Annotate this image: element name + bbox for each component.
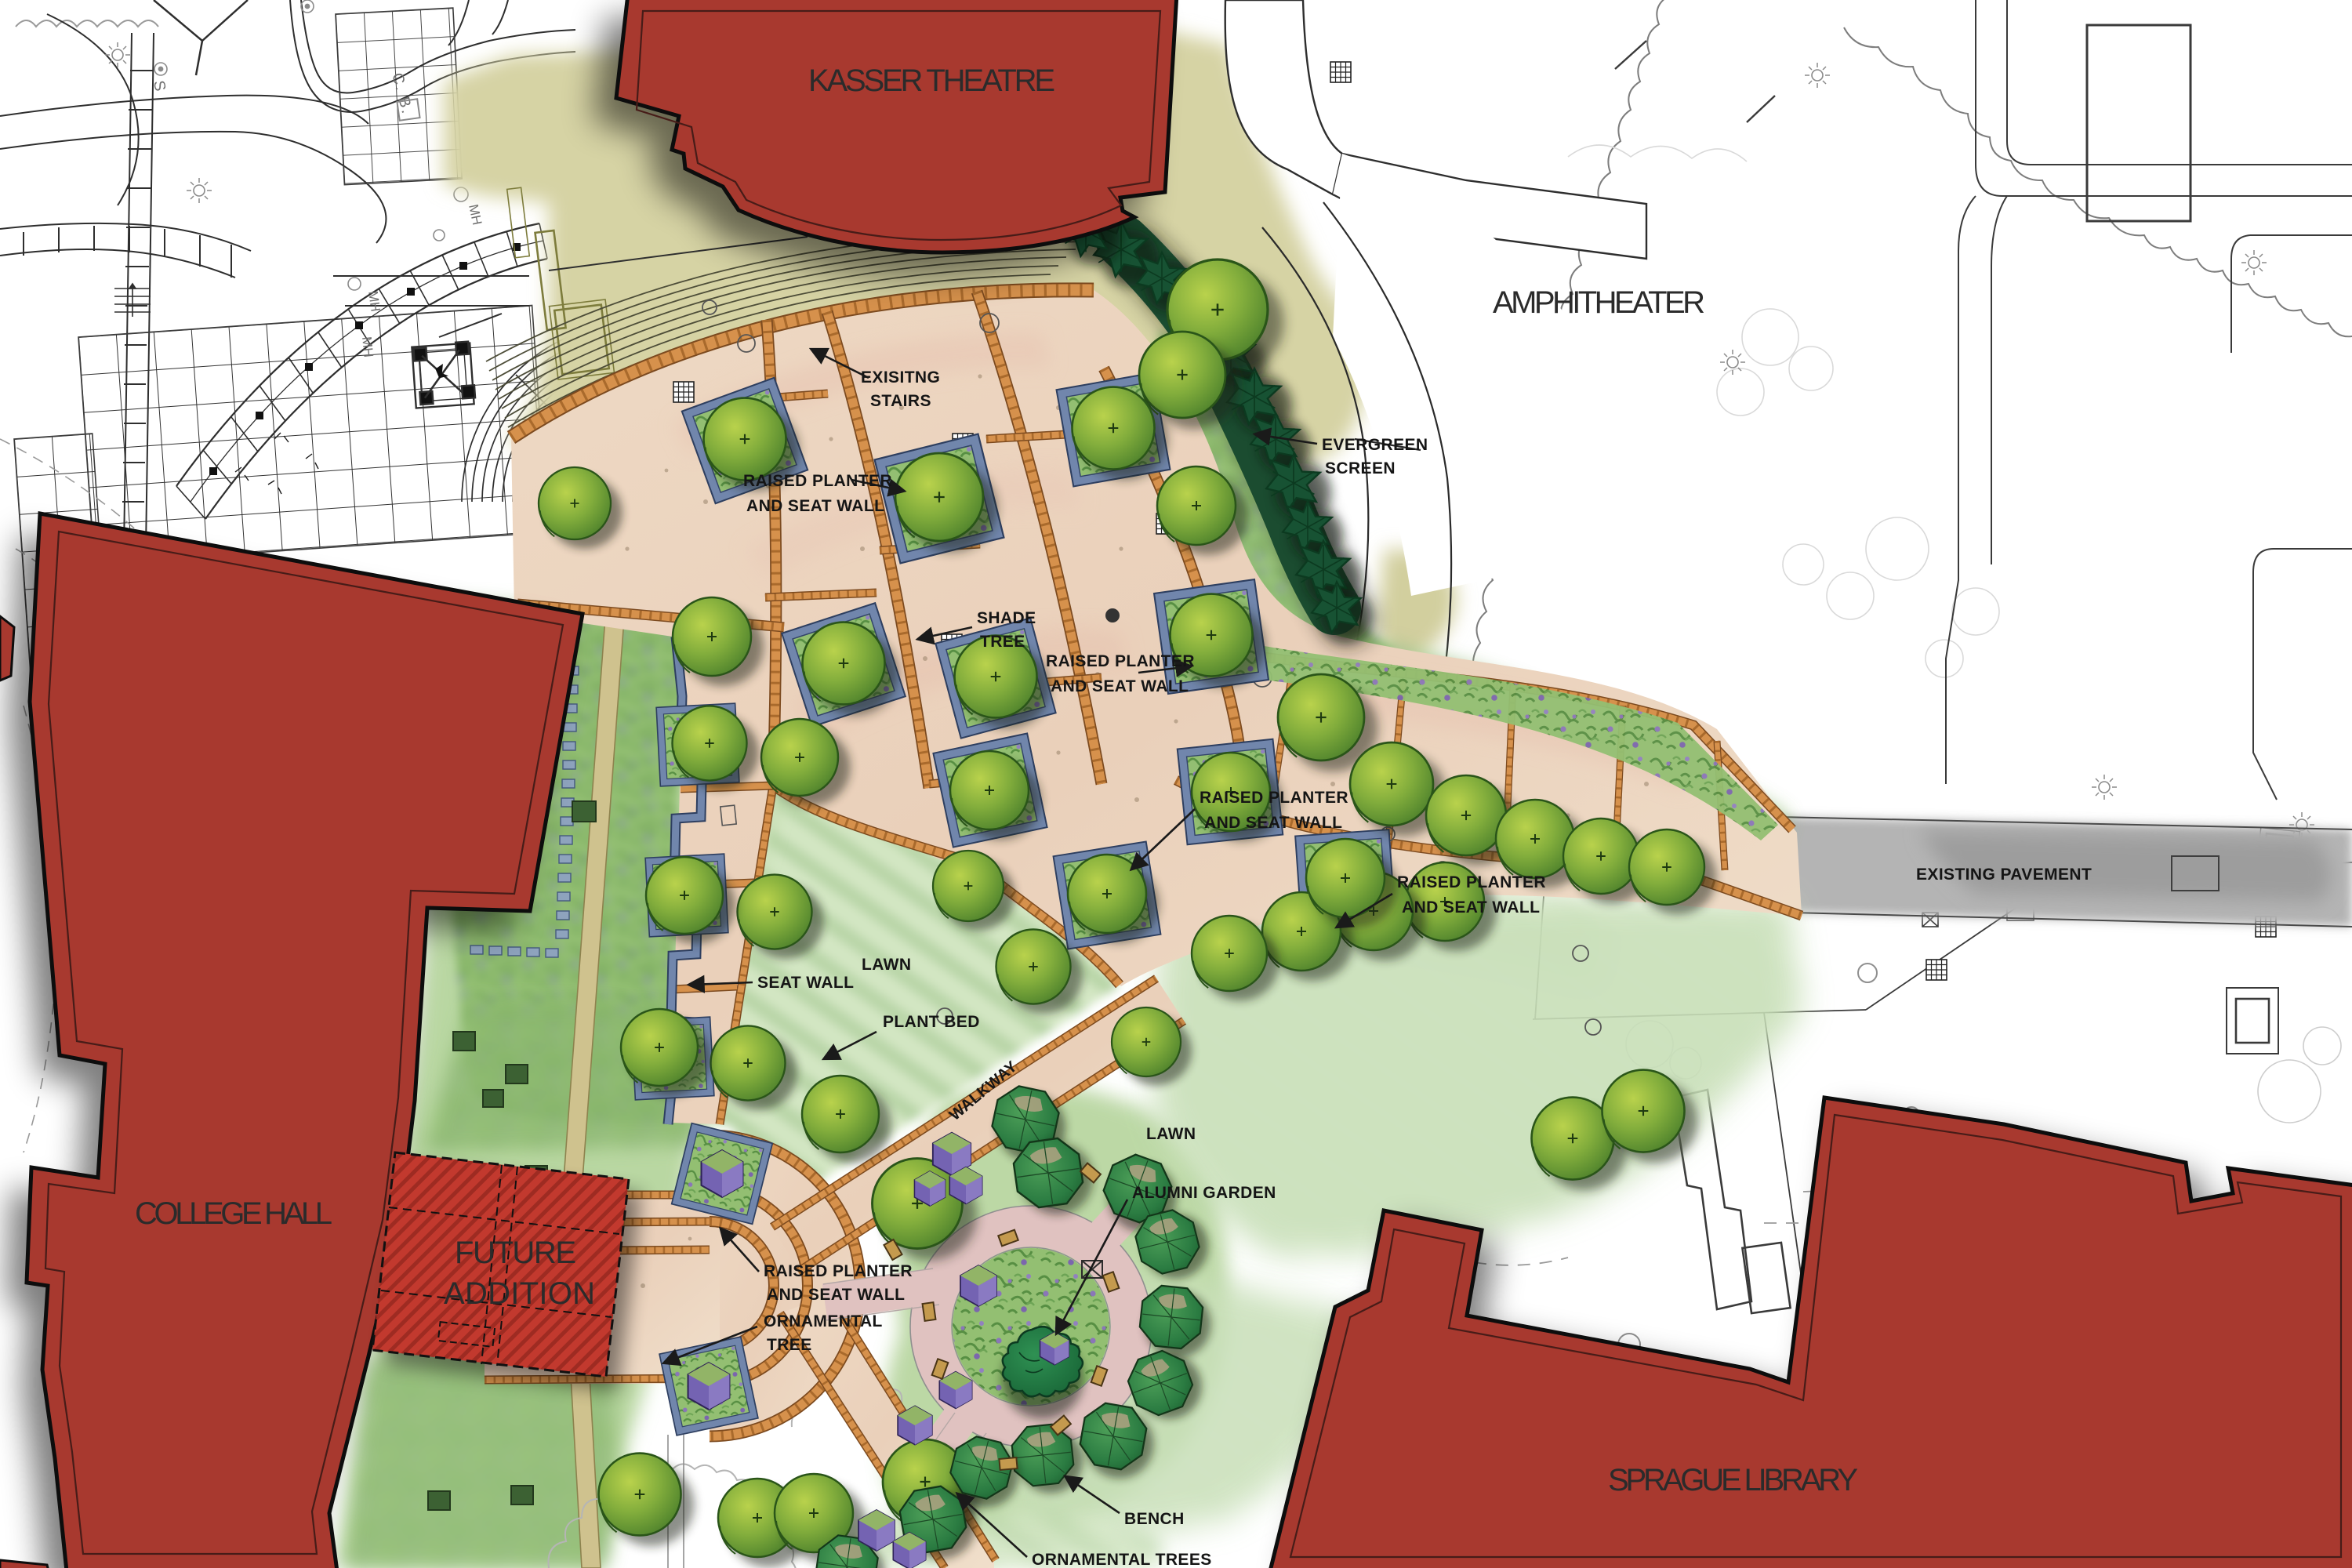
svg-text:AND SEAT WALL: AND SEAT WALL [1051,677,1189,695]
svg-text:EVERGREEN: EVERGREEN [1322,436,1428,454]
svg-text:ALUMNI GARDEN: ALUMNI GARDEN [1132,1184,1276,1202]
svg-text:TREE: TREE [767,1336,812,1354]
svg-text:LAWN: LAWN [1146,1125,1196,1143]
svg-text:AND SEAT WALL: AND SEAT WALL [1204,814,1342,832]
svg-text:EXISITNG: EXISITNG [861,368,940,387]
svg-text:RAISED PLANTER: RAISED PLANTER [764,1262,913,1280]
svg-text:AND SEAT WALL: AND SEAT WALL [1402,898,1540,916]
svg-text:COLLEGE HALL: COLLEGE HALL [135,1196,333,1231]
svg-text:RAISED PLANTER: RAISED PLANTER [1046,652,1195,670]
svg-text:EXISTING PAVEMENT: EXISTING PAVEMENT [1916,866,2092,884]
svg-text:ORNAMENTAL TREES: ORNAMENTAL TREES [1032,1551,1212,1568]
svg-text:SCREEN: SCREEN [1325,459,1396,477]
svg-text:RAISED PLANTER: RAISED PLANTER [743,472,892,490]
svg-text:PLANT BED: PLANT BED [883,1013,980,1031]
svg-text:ORNAMENTAL: ORNAMENTAL [764,1312,883,1330]
svg-text:FUTURE: FUTURE [455,1236,577,1270]
svg-text:RAISED PLANTER: RAISED PLANTER [1397,873,1546,891]
svg-text:STAIRS: STAIRS [870,392,931,410]
svg-text:AMPHITHEATER: AMPHITHEATER [1493,285,1706,320]
svg-text:SEAT WALL: SEAT WALL [757,974,854,992]
svg-text:KASSER THEATRE: KASSER THEATRE [808,64,1056,98]
svg-text:MH: MH [359,336,376,358]
svg-text:AND SEAT WALL: AND SEAT WALL [767,1286,905,1304]
svg-text:ADDITION: ADDITION [444,1276,596,1311]
svg-text:BENCH: BENCH [1124,1510,1185,1528]
svg-text:SHADE: SHADE [977,609,1036,627]
svg-text:RAISED PLANTER: RAISED PLANTER [1200,789,1348,807]
svg-text:MH: MH [365,290,383,313]
svg-text:SPRAGUE LIBRARY: SPRAGUE LIBRARY [1608,1463,1859,1497]
svg-text:LAWN: LAWN [862,956,911,974]
svg-text:AND SEAT WALL: AND SEAT WALL [746,497,884,515]
svg-text:TREE: TREE [980,633,1025,651]
